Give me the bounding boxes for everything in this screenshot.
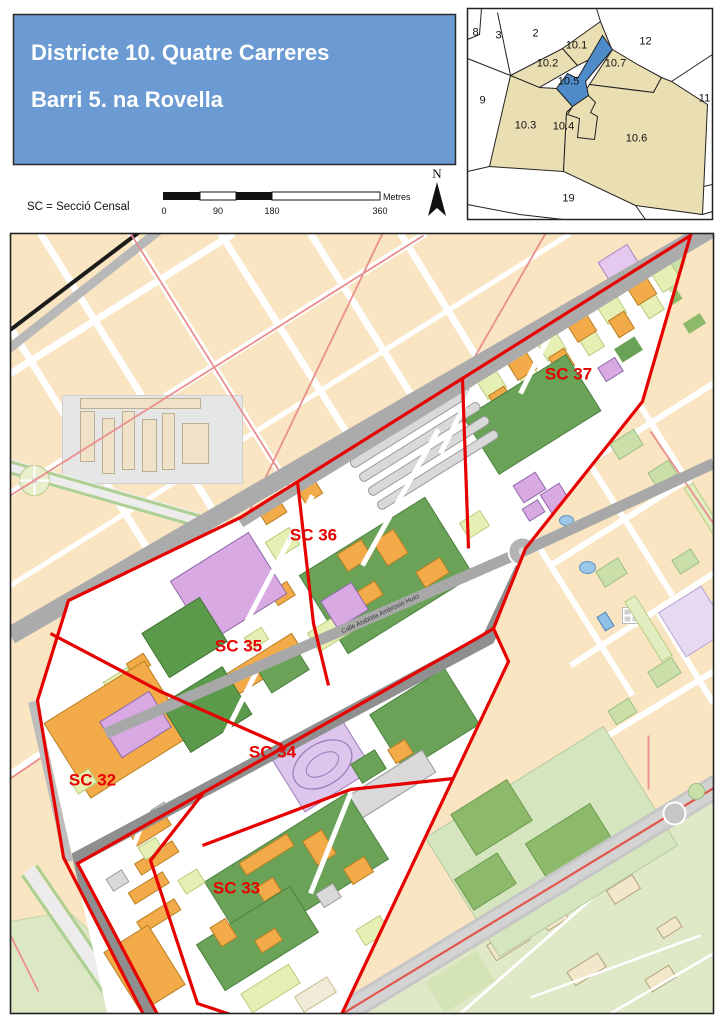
label-sc36: SC 36 — [290, 526, 337, 545]
scale-tick-180: 180 — [264, 206, 279, 216]
label-sc34: SC 34 — [249, 743, 297, 762]
north-arrow: N — [428, 166, 446, 216]
north-arrow-icon — [428, 182, 446, 216]
inset-label-10-4: 10.4 — [553, 121, 574, 133]
scale-seg-3 — [236, 192, 272, 200]
inset-map: 8 3 2 10.1 12 10.2 10.7 10.5 9 11 10.3 1… — [468, 9, 713, 220]
north-label: N — [432, 166, 442, 181]
sc-legend-note: SC = Secció Censal — [27, 201, 130, 213]
inset-label-19: 19 — [562, 193, 574, 205]
scale-tick-360: 360 — [372, 206, 387, 216]
title-block: Districte 10. Quatre Carreres Barri 5. n… — [14, 15, 456, 165]
label-sc32: SC 32 — [69, 771, 116, 790]
inset-label-9: 9 — [479, 95, 485, 107]
scale-seg-4 — [272, 192, 380, 200]
inset-label-2: 2 — [532, 28, 538, 40]
highway-roundabout — [664, 803, 686, 825]
main-map-canvas: Calle Arabista Ambrosio Huici SC 37 SC 3… — [0, 222, 724, 1024]
inset-label-10-1: 10.1 — [566, 40, 587, 52]
inset-label-10-5: 10.5 — [558, 76, 579, 88]
main-map: Calle Arabista Ambrosio Huici SC 37 SC 3… — [0, 222, 724, 1024]
scale-bar: 0 90 180 360 Metres — [161, 192, 411, 216]
scale-unit: Metres — [383, 192, 411, 202]
label-sc35: SC 35 — [215, 637, 262, 656]
inset-label-3: 3 — [495, 30, 501, 42]
scale-tick-90: 90 — [213, 206, 223, 216]
inset-label-10-6: 10.6 — [626, 133, 647, 145]
inset-label-11: 11 — [699, 93, 710, 105]
scale-seg-2 — [200, 192, 236, 200]
district-title: Districte 10. Quatre Carreres — [31, 40, 329, 65]
industrial-block — [63, 396, 243, 484]
inset-label-10-7: 10.7 — [605, 58, 626, 70]
label-sc33: SC 33 — [213, 879, 260, 898]
inset-label-10-3: 10.3 — [515, 120, 536, 132]
label-sc37: SC 37 — [545, 365, 592, 384]
pond-2 — [580, 562, 596, 574]
map-sheet-svg: Districte 10. Quatre Carreres Barri 5. n… — [0, 0, 724, 1024]
map-sheet: Districte 10. Quatre Carreres Barri 5. n… — [0, 0, 724, 1024]
scale-tick-0: 0 — [161, 206, 166, 216]
inset-label-8: 8 — [472, 27, 478, 39]
barri-title: Barri 5. na Rovella — [31, 87, 224, 112]
inset-label-10-2: 10.2 — [537, 58, 558, 70]
scale-seg-1 — [163, 192, 200, 200]
inset-label-12: 12 — [639, 36, 651, 48]
